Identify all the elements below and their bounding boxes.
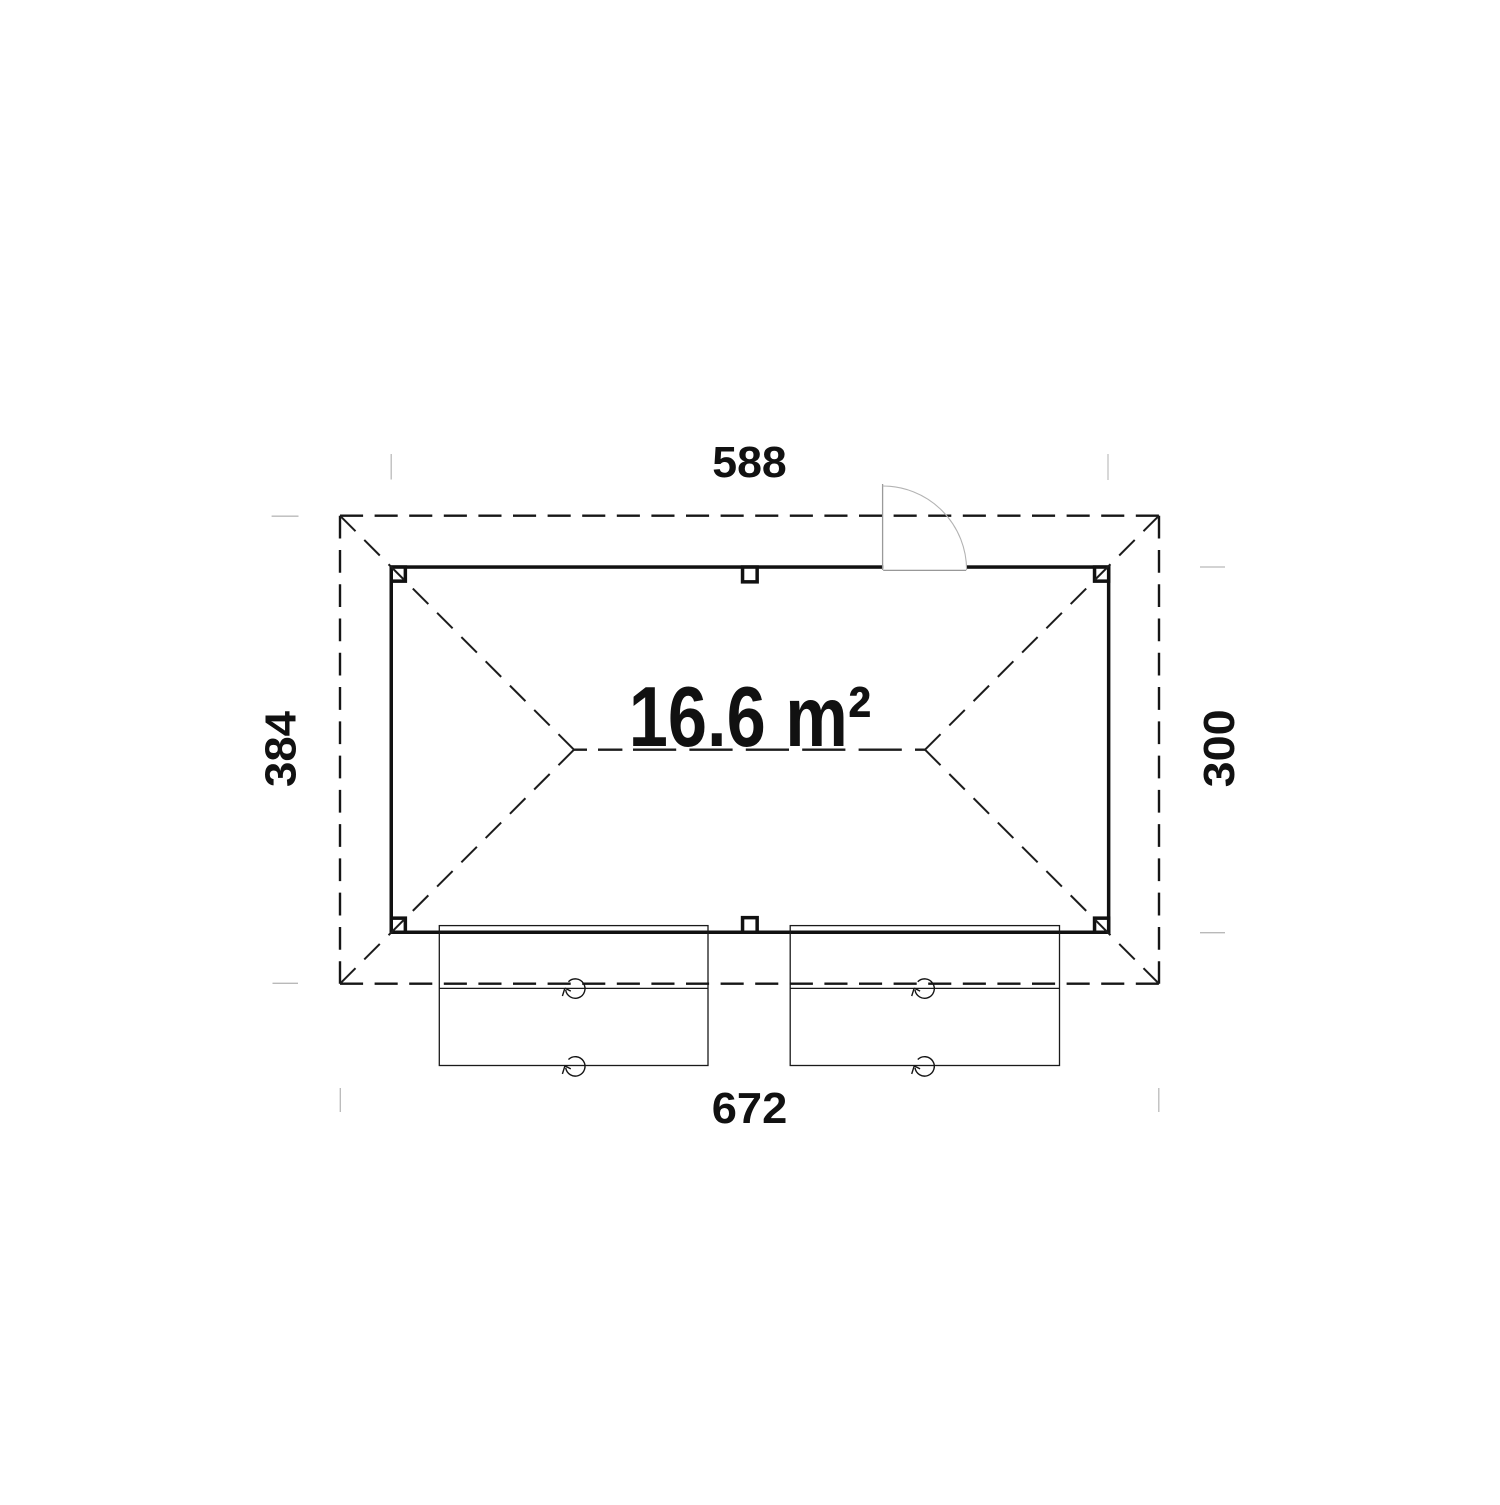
svg-text:16.6 m²: 16.6 m² xyxy=(629,669,872,765)
svg-text:300: 300 xyxy=(1196,709,1244,787)
svg-text:672: 672 xyxy=(712,1085,788,1133)
svg-text:588: 588 xyxy=(712,439,787,487)
svg-text:384: 384 xyxy=(257,710,305,787)
